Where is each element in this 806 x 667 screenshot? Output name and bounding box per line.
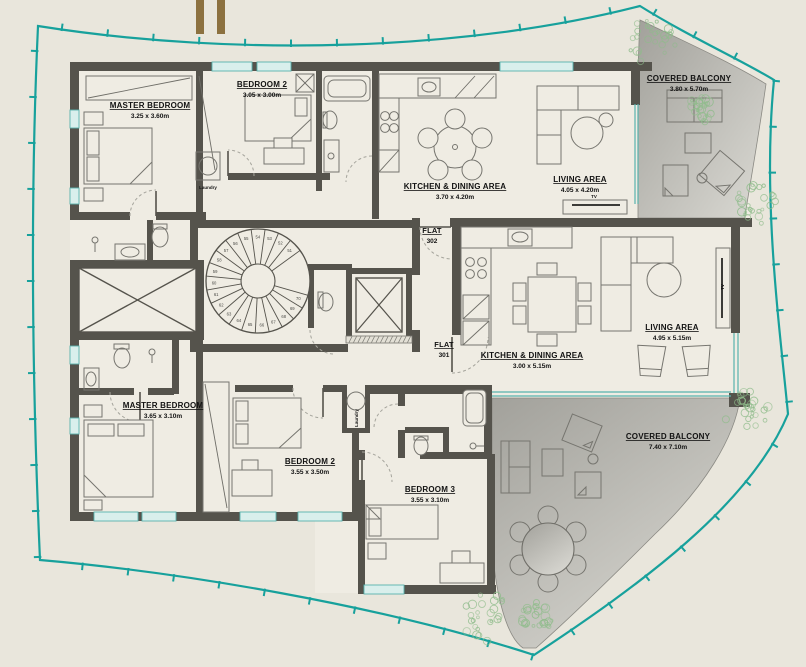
svg-text:59: 59 <box>213 269 218 274</box>
svg-text:57: 57 <box>224 248 229 253</box>
svg-text:TV: TV <box>720 284 725 290</box>
svg-text:61: 61 <box>214 292 219 297</box>
tv-unit-icon-301: TV <box>716 248 730 328</box>
svg-text:58: 58 <box>217 258 222 263</box>
svg-text:302: 302 <box>427 238 438 245</box>
svg-text:54: 54 <box>256 235 261 240</box>
floor-plan-page: TV TV <box>0 0 806 667</box>
svg-text:53: 53 <box>267 236 272 241</box>
svg-text:3.55 x 3.10m: 3.55 x 3.10m <box>411 497 450 504</box>
bed-icon-master-301 <box>84 405 153 510</box>
svg-text:3.00 x 5.15m: 3.00 x 5.15m <box>513 363 552 370</box>
svg-text:3.70 x 4.20m: 3.70 x 4.20m <box>436 194 475 201</box>
bed-icon-bedroom2-301 <box>233 398 301 448</box>
svg-text:63: 63 <box>227 312 232 317</box>
svg-text:Laundry: Laundry <box>354 409 359 427</box>
svg-text:64: 64 <box>237 318 242 323</box>
elevator-icon <box>356 278 402 332</box>
spiral-staircase-icon: 5152535455565758596061626364656667686970 <box>206 229 310 333</box>
svg-text:LIVING AREA: LIVING AREA <box>645 323 698 332</box>
svg-text:51: 51 <box>287 248 292 253</box>
svg-text:BEDROOM 2: BEDROOM 2 <box>285 457 336 466</box>
svg-text:3.80 x 5.70m: 3.80 x 5.70m <box>670 86 709 93</box>
svg-text:4.05 x 4.20m: 4.05 x 4.20m <box>561 187 600 194</box>
svg-text:FLAT: FLAT <box>422 226 442 235</box>
svg-text:COVERED BALCONY: COVERED BALCONY <box>626 432 711 441</box>
svg-text:MASTER BEDROOM: MASTER BEDROOM <box>123 401 204 410</box>
svg-text:3.65 x 3.10m: 3.65 x 3.10m <box>144 413 183 420</box>
svg-text:3.55 x 3.50m: 3.55 x 3.50m <box>291 469 330 476</box>
svg-text:COVERED BALCONY: COVERED BALCONY <box>647 74 732 83</box>
svg-text:3.05 x 3.00m: 3.05 x 3.00m <box>243 92 282 99</box>
svg-text:MASTER BEDROOM: MASTER BEDROOM <box>110 101 191 110</box>
svg-text:301: 301 <box>439 352 450 359</box>
svg-text:KITCHEN & DINING AREA: KITCHEN & DINING AREA <box>404 182 507 191</box>
svg-text:BEDROOM 2: BEDROOM 2 <box>237 80 288 89</box>
svg-text:BEDROOM 3: BEDROOM 3 <box>405 485 456 494</box>
svg-text:60: 60 <box>212 280 217 285</box>
svg-text:7.40 x 7.10m: 7.40 x 7.10m <box>649 444 688 451</box>
svg-text:70: 70 <box>296 296 301 301</box>
svg-text:4.95 x 5.15m: 4.95 x 5.15m <box>653 335 692 342</box>
svg-text:55: 55 <box>244 236 249 241</box>
bed-icon-bedroom2-302 <box>245 95 311 141</box>
svg-text:67: 67 <box>271 320 276 325</box>
svg-text:56: 56 <box>233 241 238 246</box>
svg-text:LIVING AREA: LIVING AREA <box>553 175 606 184</box>
elevator-sill-hatch <box>346 336 412 343</box>
svg-text:62: 62 <box>219 303 224 308</box>
svg-text:FLAT: FLAT <box>434 340 454 349</box>
svg-text:52: 52 <box>278 241 283 246</box>
svg-text:66: 66 <box>259 322 264 327</box>
svg-text:KITCHEN & DINING AREA: KITCHEN & DINING AREA <box>481 351 584 360</box>
floor-plan-canvas: TV TV <box>0 0 806 667</box>
svg-text:TV: TV <box>591 194 597 199</box>
laundry-label-302: Laundry <box>199 185 217 190</box>
svg-text:65: 65 <box>248 322 253 327</box>
svg-text:3.25 x 3.60m: 3.25 x 3.60m <box>131 113 170 120</box>
svg-text:69: 69 <box>290 306 295 311</box>
svg-text:68: 68 <box>281 314 286 319</box>
